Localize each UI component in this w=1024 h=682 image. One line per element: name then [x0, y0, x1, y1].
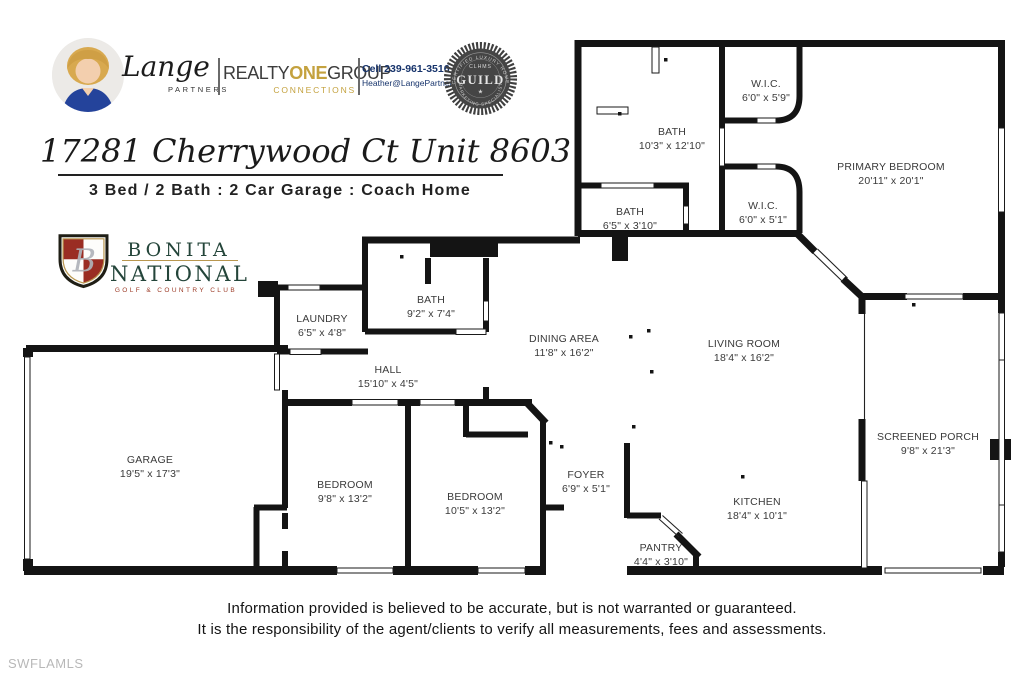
- room-label-primary-bedroom: PRIMARY BEDROOM20'11" x 20'1": [837, 160, 945, 188]
- room-label-living-room: LIVING ROOM18'4" x 16'2": [708, 337, 780, 365]
- room-label-hall: HALL15'10" x 4'5": [358, 363, 418, 391]
- room-label-pantry: PANTRY4'4" x 3'10": [634, 541, 688, 569]
- room-label-garage: GARAGE19'5" x 17'3": [120, 453, 180, 481]
- floorplan-windows-doors: [25, 47, 1005, 573]
- floorplan-drawing: [0, 0, 1024, 682]
- disclaimer-line1: Information provided is believed to be a…: [0, 598, 1024, 619]
- room-label-dining-area: DINING AREA11'8" x 16'2": [529, 332, 599, 360]
- room-label-kitchen: KITCHEN18'4" x 10'1": [727, 495, 787, 523]
- room-label-bath-small: BATH6'5" x 3'10": [603, 205, 657, 233]
- disclaimer-line2: It is the responsibility of the agent/cl…: [0, 619, 1024, 640]
- room-label-wic-1: W.I.C.6'0" x 5'9": [742, 77, 790, 105]
- floorplan-door-swings: [659, 249, 1005, 537]
- room-label-laundry: LAUNDRY6'5" x 4'8": [296, 312, 347, 340]
- room-label-bath-hall: BATH9'2" x 7'4": [407, 293, 455, 321]
- flyer-canvas: Lange PARTNERS REALTYONEGROUP CONNECTION…: [0, 0, 1024, 682]
- room-label-bath-primary: BATH10'3" x 12'10": [639, 125, 705, 153]
- room-label-foyer: FOYER6'9" x 5'1": [562, 468, 610, 496]
- room-label-bedroom-3: BEDROOM10'5" x 13'2": [445, 490, 505, 518]
- mls-watermark: SWFLAMLS: [8, 656, 84, 671]
- room-label-screened-porch: SCREENED PORCH9'8" x 21'3": [877, 430, 979, 458]
- room-label-wic-2: W.I.C.6'0" x 5'1": [739, 199, 787, 227]
- disclaimer: Information provided is believed to be a…: [0, 598, 1024, 640]
- floorplan-outer-walls: [26, 40, 1004, 567]
- room-label-bedroom-2: BEDROOM9'8" x 13'2": [317, 478, 373, 506]
